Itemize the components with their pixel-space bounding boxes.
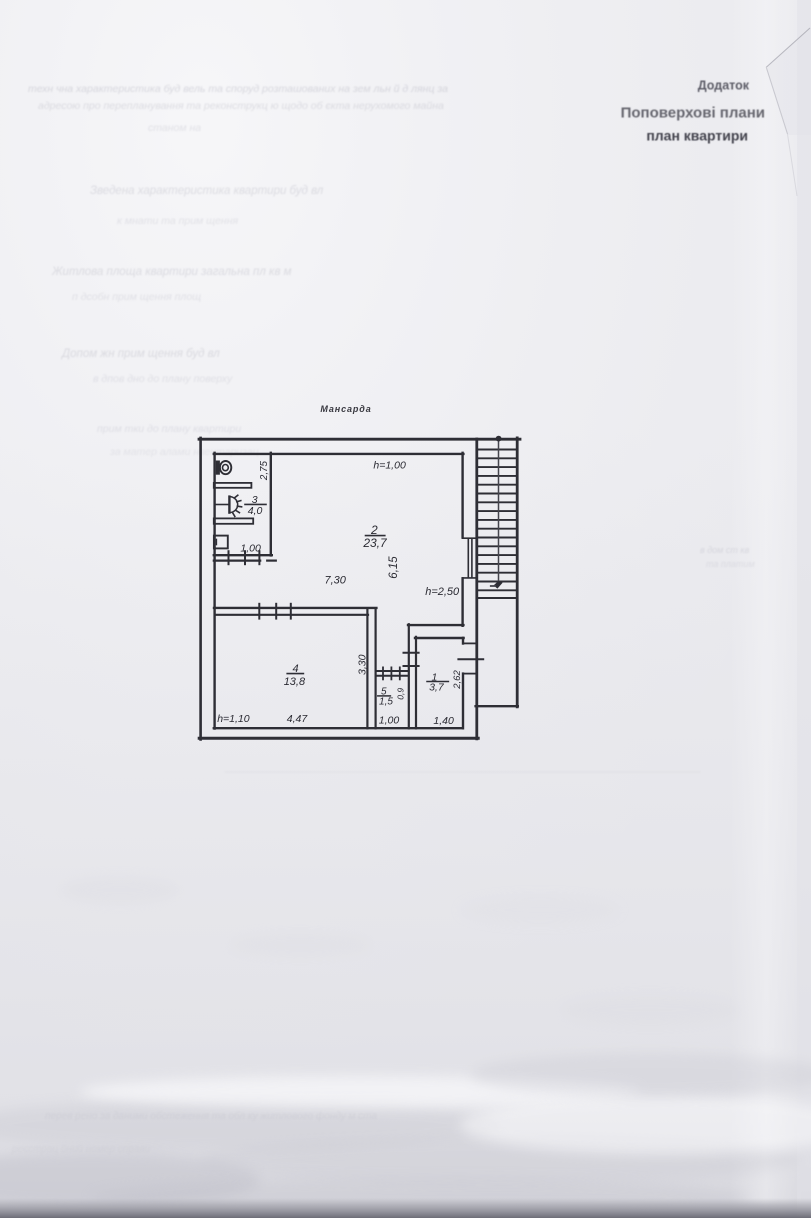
svg-text:Зведена характеристика квартир: Зведена характеристика квартири буд вл: [90, 185, 324, 197]
svg-text:к мнати та прим щення: к мнати та прим щення: [117, 215, 238, 227]
svg-text:2,62: 2,62: [452, 670, 463, 690]
svg-text:реєстрац йний номер справи: реєстрац йний номер справи: [11, 1144, 151, 1155]
svg-text:в дпов дно до плану поверху: в дпов дно до плану поверху: [93, 373, 233, 385]
svg-text:станом на: станом на: [148, 122, 201, 134]
svg-text:23,7: 23,7: [362, 536, 388, 550]
svg-text:3,30: 3,30: [357, 654, 369, 675]
svg-text:4,47: 4,47: [287, 713, 309, 725]
svg-text:2,75: 2,75: [259, 461, 270, 482]
svg-text:h=1,00: h=1,00: [373, 459, 406, 471]
svg-text:1,00: 1,00: [379, 714, 400, 726]
svg-text:h=1,10: h=1,10: [217, 713, 250, 725]
svg-text:та платим: та платим: [706, 559, 755, 569]
svg-text:1,00: 1,00: [240, 542, 261, 554]
svg-text:в дом ст кв: в дом ст кв: [700, 545, 750, 555]
svg-text:Мансарда: Мансарда: [320, 404, 371, 414]
svg-text:13,8: 13,8: [284, 676, 306, 688]
svg-text:7,30: 7,30: [324, 575, 346, 587]
svg-text:Додаток: Додаток: [698, 79, 750, 93]
svg-text:Житлова площа квартири загальн: Житлова площа квартири загальна пл кв м: [51, 266, 292, 278]
svg-text:адресою про перепланування та: адресою про перепланування та реконструк…: [38, 100, 444, 112]
svg-text:Поповерхові плани: Поповерхові плани: [621, 105, 765, 122]
svg-text:за матер алами нвентаризац: за матер алами нвентаризац: [109, 446, 259, 458]
svg-text:Допом жн прим щення буд вл: Допом жн прим щення буд вл: [60, 348, 220, 360]
svg-text:6,15: 6,15: [388, 556, 400, 579]
svg-text:4,0: 4,0: [248, 505, 263, 517]
svg-text:h=2,50: h=2,50: [425, 586, 460, 598]
svg-text:прим тки до плану квартири: прим тки до плану квартири: [97, 423, 241, 435]
svg-text:1,5: 1,5: [379, 696, 393, 707]
svg-text:план квартири: план квартири: [646, 128, 748, 144]
svg-text:0,9: 0,9: [396, 688, 406, 700]
svg-text:техн чна характеристика буд ве: техн чна характеристика буд вель та спор…: [28, 83, 448, 95]
svg-text:п дсобн прим щення площ: п дсобн прим щення площ: [72, 291, 201, 303]
svg-text:3,7: 3,7: [429, 681, 445, 693]
svg-text:1,40: 1,40: [433, 715, 454, 727]
svg-text:перев рено за даними обстеженн: перев рено за даними обстеження та обл к…: [45, 1110, 377, 1122]
